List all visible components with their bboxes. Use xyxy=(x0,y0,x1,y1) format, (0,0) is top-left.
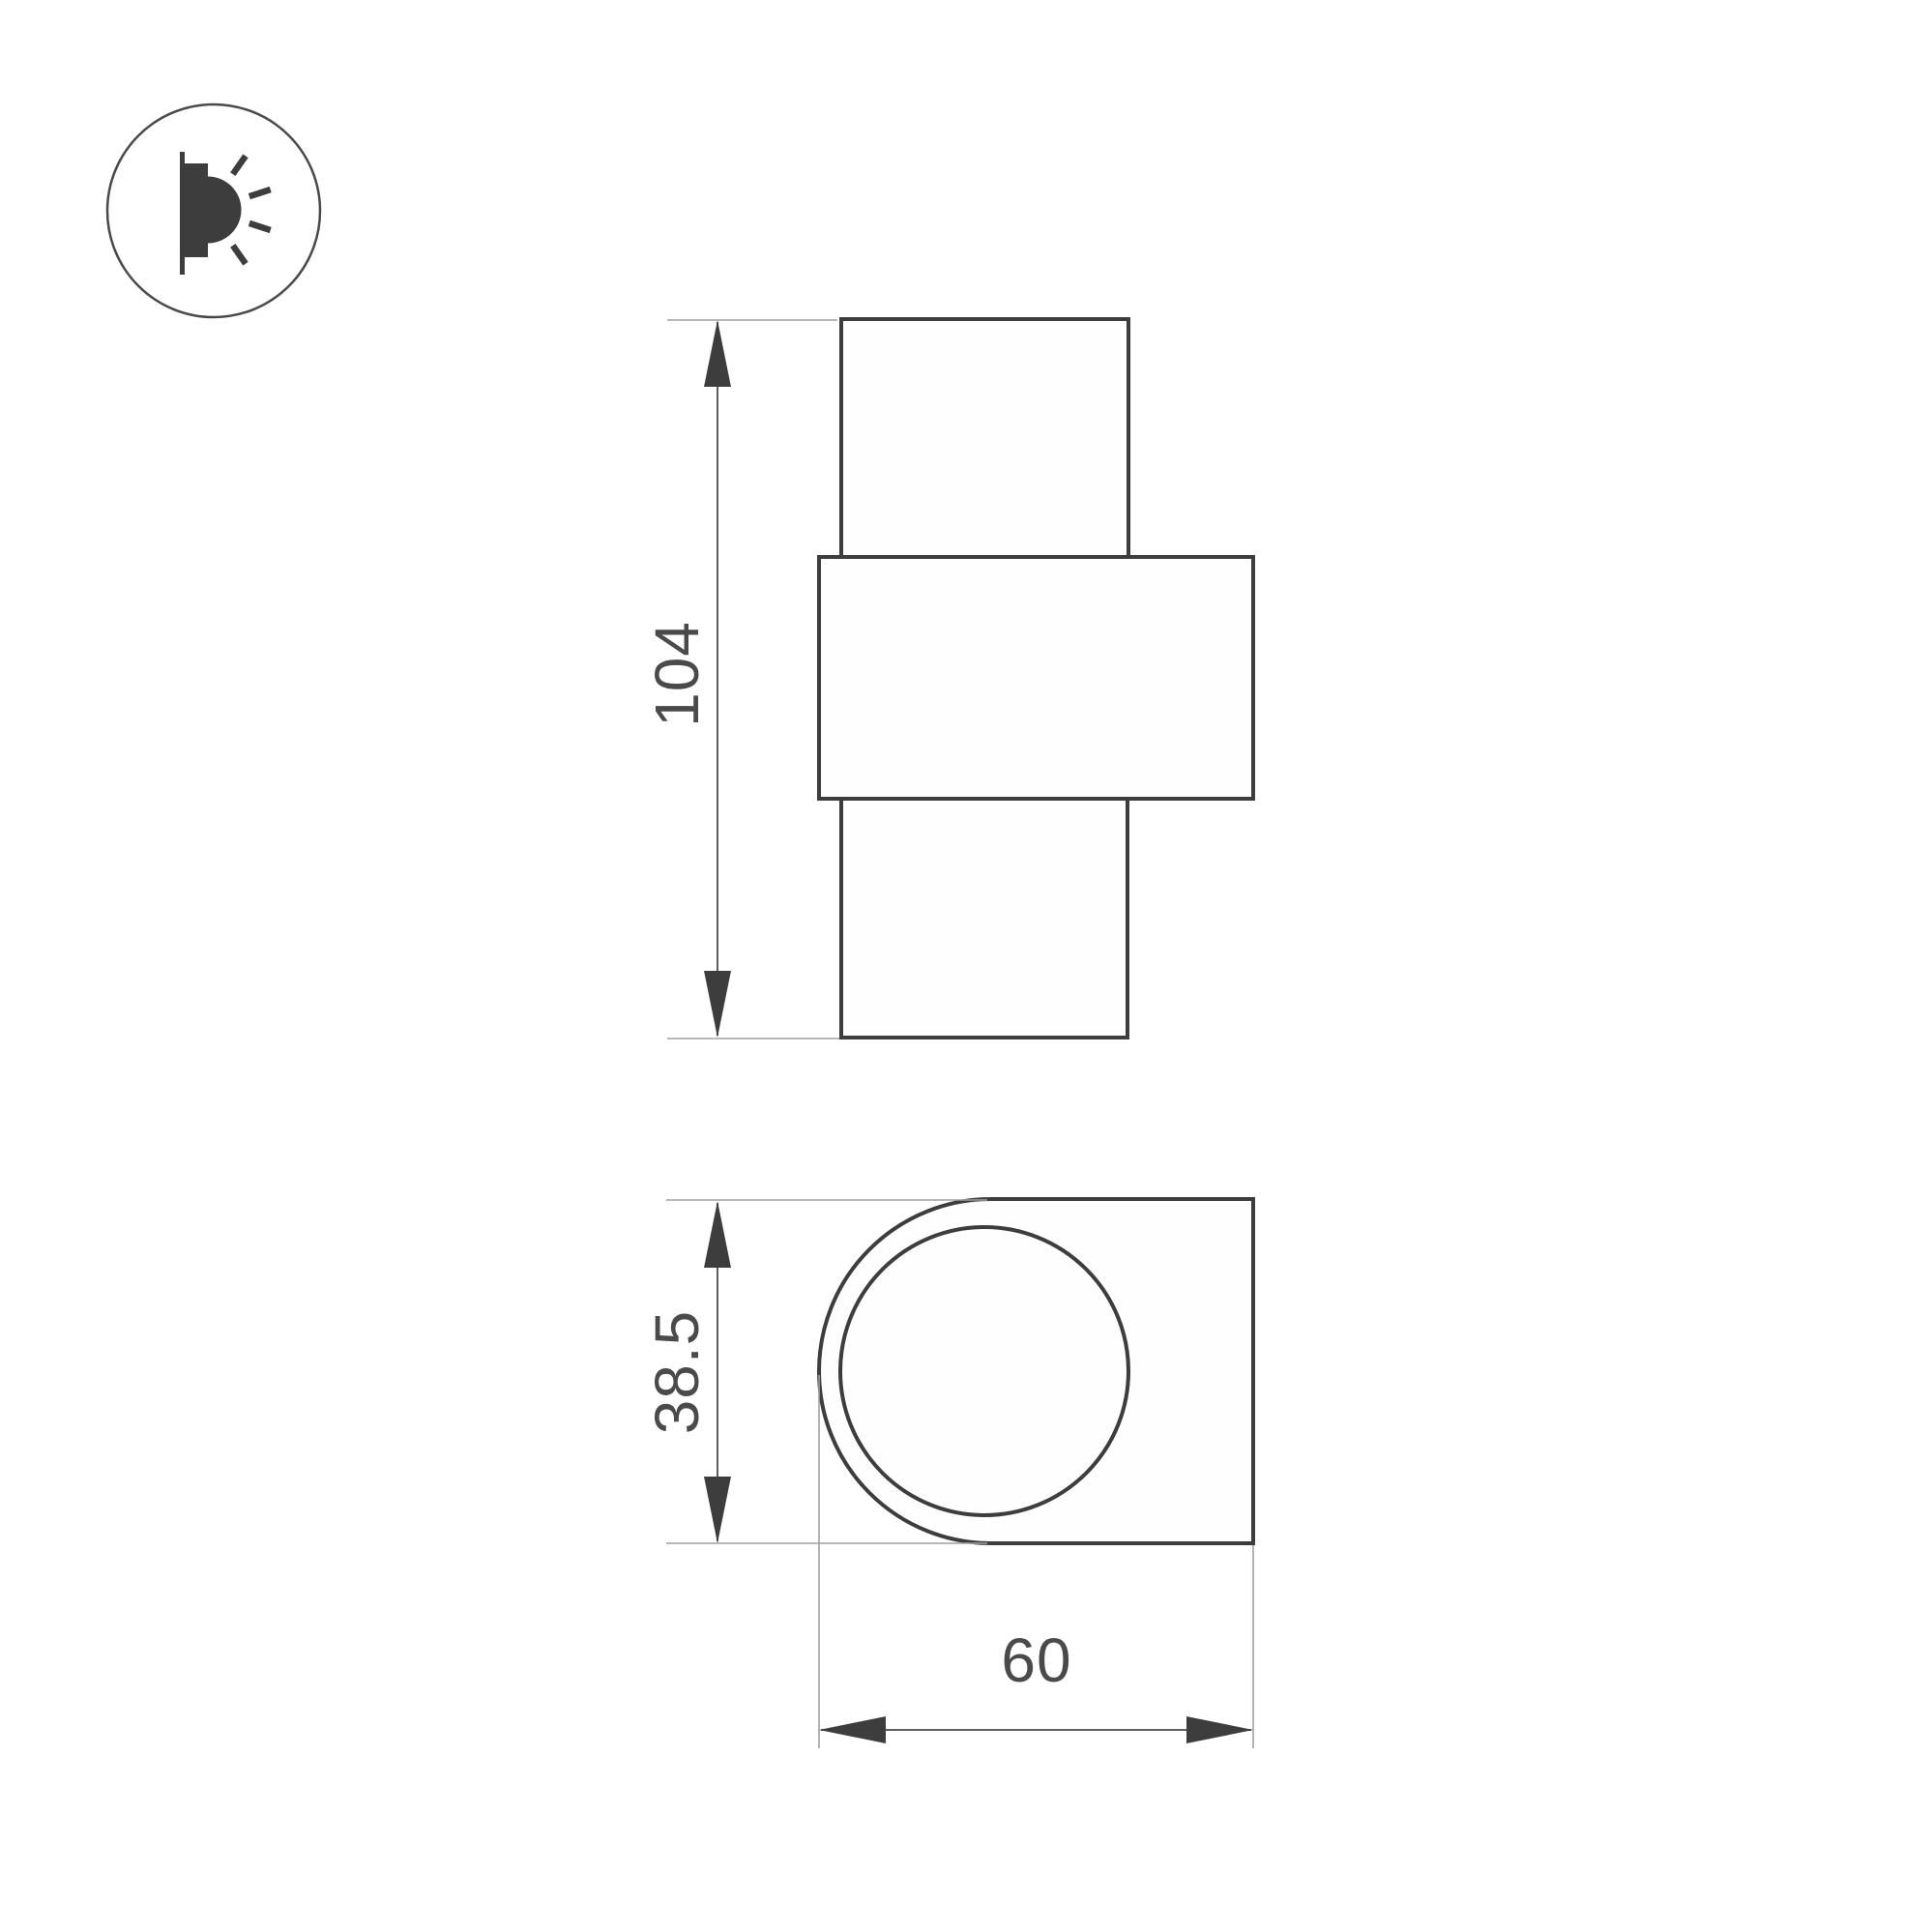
dimension-drawing-page: 104 38.5 60 xyxy=(0,0,1932,1932)
technical-drawing-canvas: 104 38.5 60 xyxy=(0,0,1932,1932)
middle-body xyxy=(819,557,1253,799)
icon-wall-line xyxy=(180,152,185,275)
lower-cylinder xyxy=(841,799,1127,1038)
profile-width-label: 60 xyxy=(1001,1625,1071,1695)
profile-height-label: 38.5 xyxy=(642,1310,712,1435)
front-height-label: 104 xyxy=(642,621,712,727)
lens-circle xyxy=(840,1227,1128,1515)
upper-cylinder xyxy=(841,319,1128,557)
icon-lamp-body xyxy=(185,163,208,257)
